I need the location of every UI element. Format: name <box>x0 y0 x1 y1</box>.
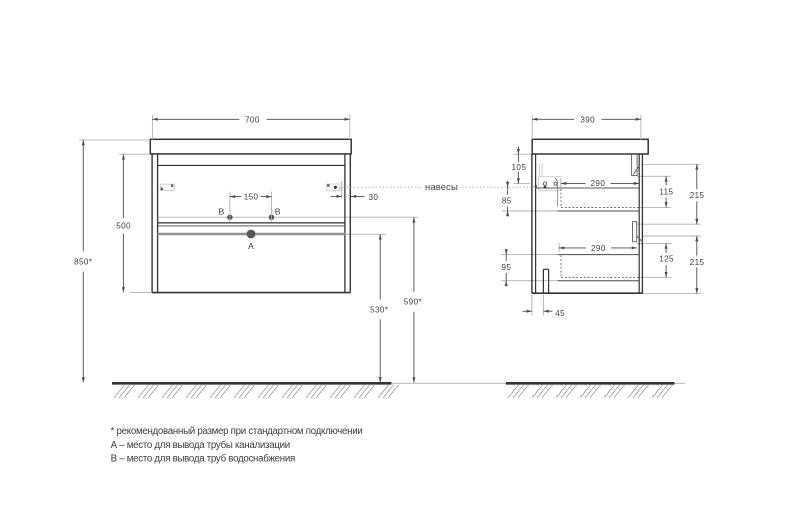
svg-text:А – место для вывода трубы кан: А – место для вывода трубы канализации <box>111 440 290 451</box>
svg-text:290: 290 <box>591 244 606 253</box>
svg-text:850*: 850* <box>74 258 93 267</box>
svg-text:290: 290 <box>591 179 606 188</box>
svg-text:150: 150 <box>244 192 259 201</box>
svg-text:590*: 590* <box>404 298 423 307</box>
svg-text:115: 115 <box>659 187 673 196</box>
svg-text:В – место для вывода труб водо: В – место для вывода труб водоснабжения <box>111 453 295 464</box>
svg-text:125: 125 <box>659 255 674 264</box>
svg-text:85: 85 <box>502 196 512 205</box>
svg-text:A: A <box>248 241 254 251</box>
svg-text:навесы: навесы <box>425 182 458 193</box>
svg-text:* рекомендованный размер при с: * рекомендованный размер при стандартном… <box>111 426 363 437</box>
svg-text:105: 105 <box>512 163 527 172</box>
svg-text:390: 390 <box>580 116 595 125</box>
svg-text:B: B <box>275 207 281 217</box>
svg-text:215: 215 <box>690 191 705 200</box>
svg-text:30: 30 <box>368 193 378 202</box>
svg-text:500: 500 <box>116 222 131 231</box>
svg-text:45: 45 <box>555 309 565 318</box>
svg-text:B: B <box>218 207 224 217</box>
svg-text:95: 95 <box>501 263 511 272</box>
svg-text:530*: 530* <box>370 305 389 314</box>
svg-text:215: 215 <box>690 258 705 267</box>
svg-text:700: 700 <box>245 116 260 125</box>
